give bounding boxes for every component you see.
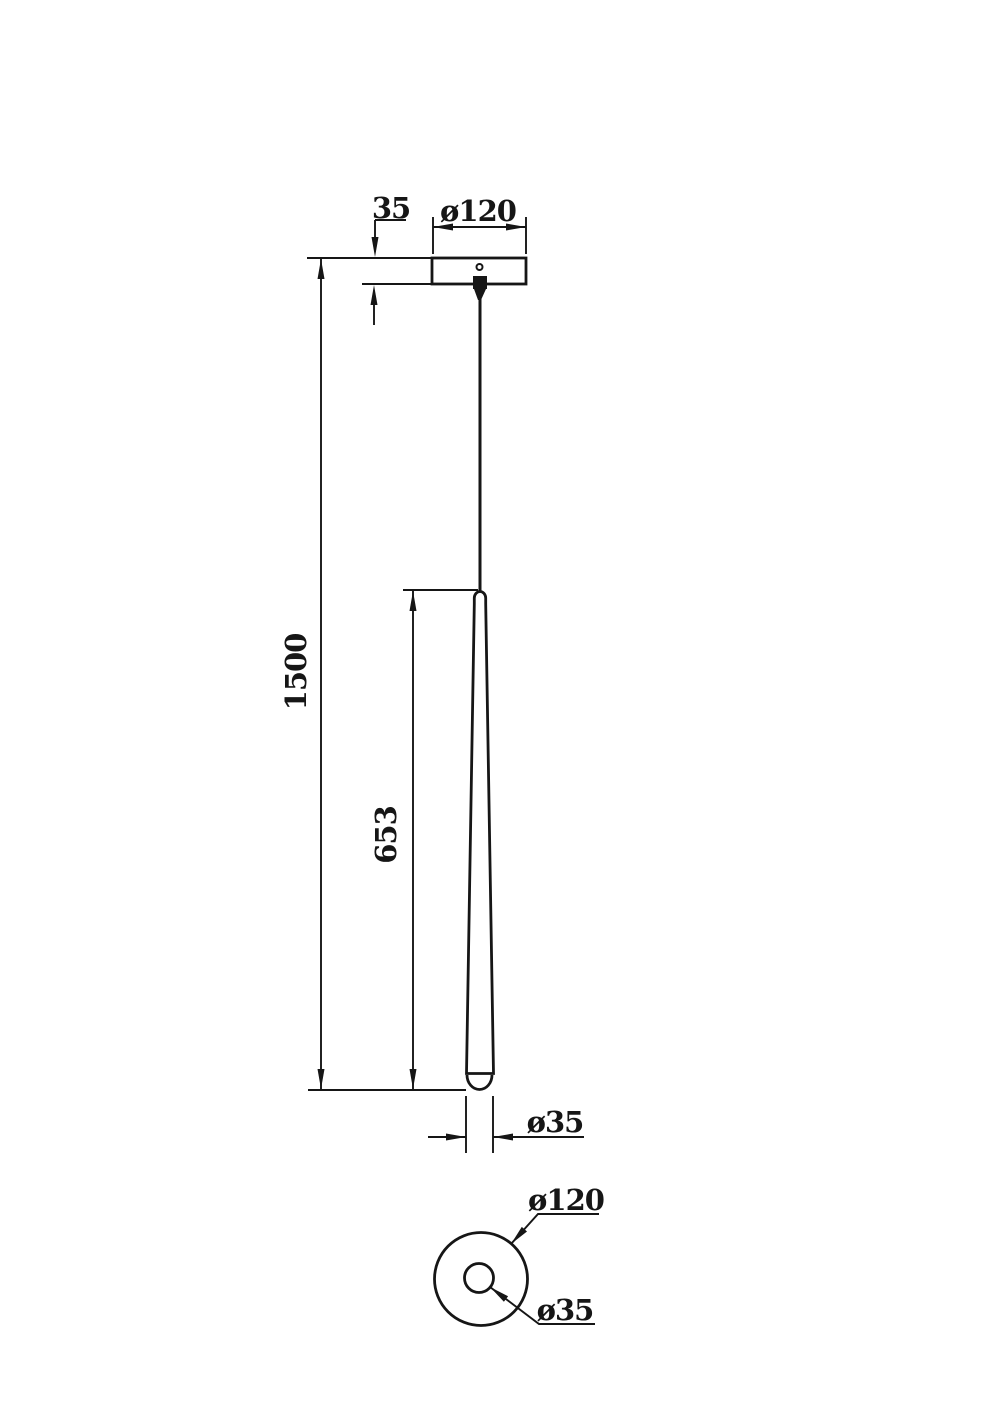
arrow-left-icon <box>493 1134 513 1141</box>
leader-120-line <box>511 1214 599 1244</box>
cord-attachment <box>473 276 487 289</box>
shade-diameter-dim-label: ø35 <box>527 1105 584 1139</box>
arrow-right-icon <box>446 1134 466 1141</box>
shade-length-dim-label: 653 <box>369 806 403 864</box>
arrow-up-icon <box>318 259 325 279</box>
front-view: 35 ø120 1500 <box>279 191 584 1153</box>
shade-bottom-dome <box>467 1075 492 1090</box>
dimension-drawing-canvas: 35 ø120 1500 <box>0 0 992 1403</box>
arrow-leader-icon <box>511 1227 527 1244</box>
bottomview-outer-diameter-label: ø120 <box>528 1183 604 1217</box>
arrow-down-icon <box>410 1069 417 1089</box>
bottomview-hole-diameter-label: ø35 <box>537 1293 594 1327</box>
canopy-diameter-dim-label: ø120 <box>440 194 516 228</box>
bottom-view: ø120 ø35 <box>435 1183 604 1327</box>
canopy-mount-dot <box>477 264 483 270</box>
cone-shade <box>467 592 494 1074</box>
dim-shade-diameter: ø35 <box>428 1096 584 1153</box>
arrow-down-icon <box>372 237 379 257</box>
dim-shade-height: 653 <box>369 590 478 1089</box>
canopy-thickness-dim-label: 35 <box>372 191 410 225</box>
dim-canopy-diameter: ø120 <box>433 194 526 254</box>
arrow-up-icon <box>410 591 417 611</box>
bottomview-hole-circle <box>465 1264 494 1293</box>
arrow-down-icon <box>318 1069 325 1089</box>
overall-height-dim-label: 1500 <box>279 634 313 711</box>
dim-overall-height: 1500 <box>279 259 325 1089</box>
drawing-page: 35 ø120 1500 <box>0 0 992 1403</box>
leader-outer-diameter: ø120 <box>511 1183 604 1244</box>
